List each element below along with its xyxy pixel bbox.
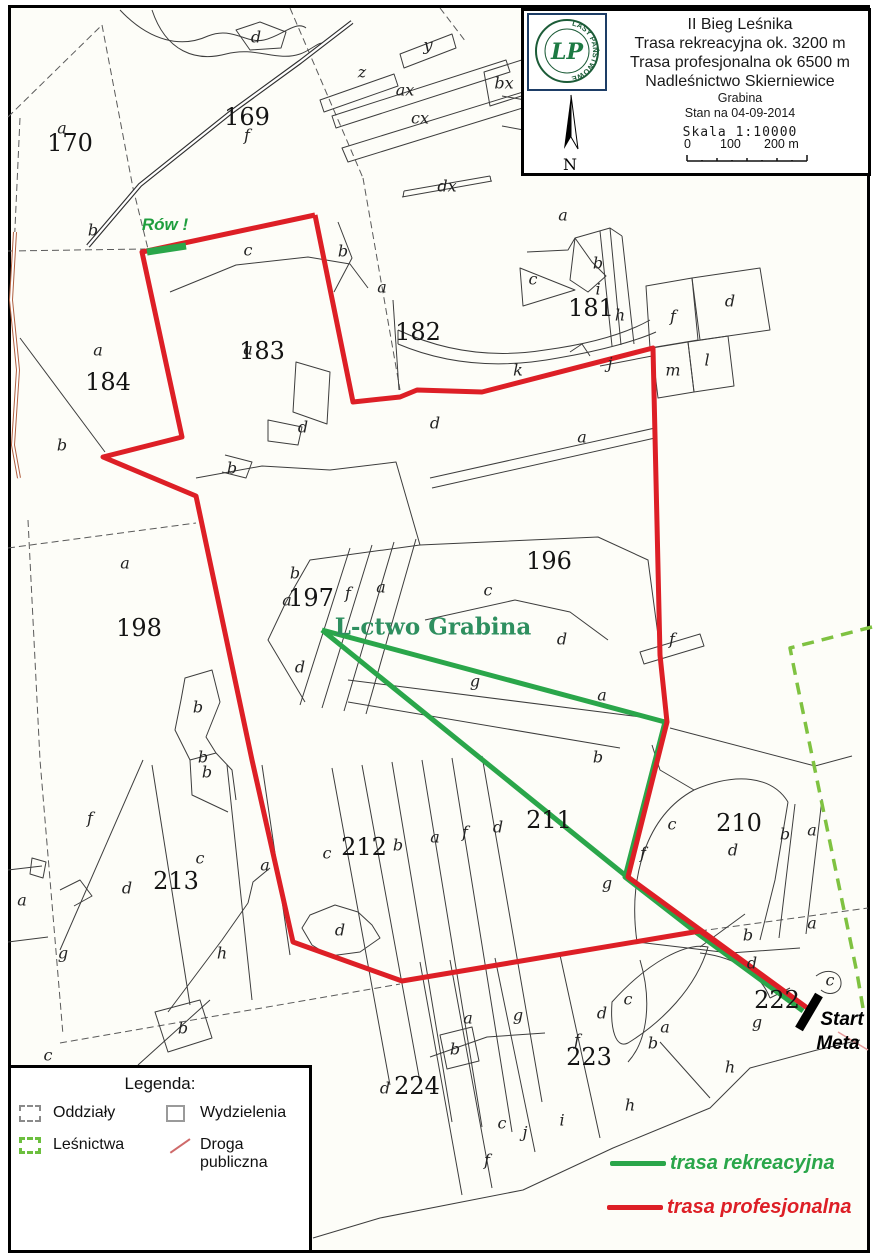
title-subline: Grabina [612, 91, 868, 106]
lesnictwo-boundary [790, 627, 872, 1008]
dashed-green-square-icon [19, 1137, 41, 1154]
scale-bar: 0 100 200 m [672, 137, 872, 173]
red-road-line-icon [166, 1137, 190, 1155]
trail-legend-line-icon [610, 1161, 666, 1166]
trail-legend-label: trasa rekreacyjna [670, 1152, 835, 1174]
legend-title: Legenda: [19, 1074, 301, 1094]
legend-item-label: Leśnictwa [53, 1136, 158, 1154]
trail-legend-row: trasa rekreacyjna [610, 1152, 835, 1178]
trail-legend-label: trasa profesjonalna [667, 1196, 852, 1218]
title-text: II Bieg LeśnikaTrasa rekreacyjna ok. 320… [612, 15, 868, 140]
map-page: 1701691821831841811961971982102112122132… [0, 0, 886, 1260]
dashed-gray-square-icon [19, 1105, 41, 1122]
road-public-corner [838, 1032, 868, 1050]
title-line: Trasa profesjonalna ok 6500 m [612, 53, 868, 72]
svg-text:LP: LP [550, 39, 584, 65]
title-line: Nadleśnictwo Skierniewice [612, 72, 868, 91]
title-box: LASY PAŃSTWOWE LP N II Bieg LeśnikaTrasa… [521, 8, 871, 176]
trail-legend-line-icon [607, 1205, 663, 1210]
title-subline: Stan na 04-09-2014 [612, 106, 868, 121]
legend-item-label: Oddziały [53, 1104, 158, 1122]
logo-emblem-icon: LASY PAŃSTWOWE LP [529, 15, 605, 89]
scale-ruler-icon [672, 153, 872, 171]
trasa-profesjonalna [103, 215, 806, 1007]
legend-box: Legenda: OddziałyWydzieleniaLeśnictwaDro… [8, 1065, 312, 1253]
lasy-panstwowe-logo: LASY PAŃSTWOWE LP [527, 13, 607, 91]
legend-items: OddziałyWydzieleniaLeśnictwaDroga public… [19, 1104, 301, 1172]
trail-legend-row: trasa profesjonalna [607, 1196, 852, 1222]
north-letter: N [563, 155, 577, 174]
title-line: II Bieg Leśnika [612, 15, 868, 34]
gray-square-icon [166, 1105, 185, 1122]
title-line: Trasa rekreacyjna ok. 3200 m [612, 34, 868, 53]
trail-routes-layer [11, 22, 872, 1050]
legend-item-label: Wydzielenia [200, 1104, 301, 1122]
legend-item-label: Droga publiczna [200, 1136, 301, 1172]
parcel-linework [8, 8, 868, 1238]
row-ditch-mark [147, 246, 186, 252]
